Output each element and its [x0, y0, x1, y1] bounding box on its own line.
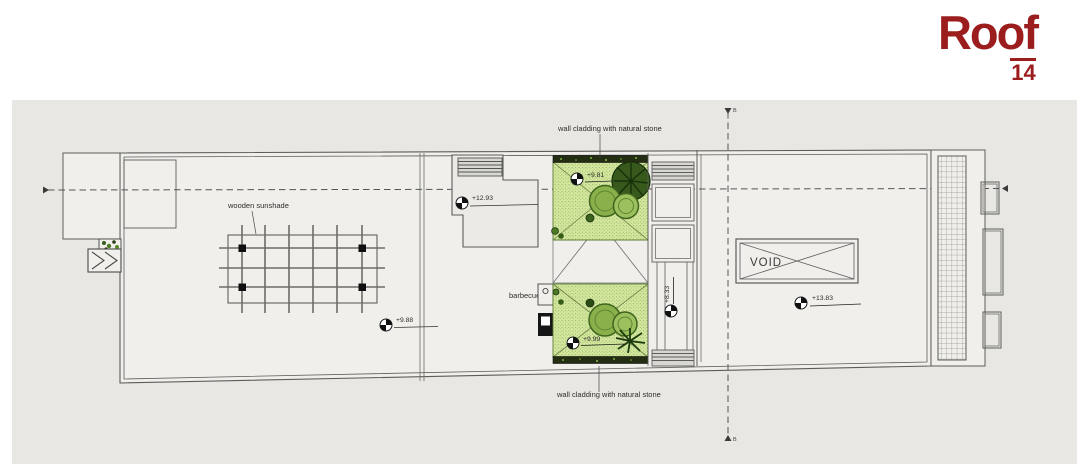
skylight-box-2 — [652, 225, 694, 262]
wall-cladding-label-top: wall cladding with natural stone — [557, 124, 662, 133]
stairs — [88, 249, 121, 272]
elevation-marker — [665, 305, 677, 317]
wooden-sunshade-label: wooden sunshade — [227, 201, 289, 210]
section-label-b-top: B — [733, 108, 737, 114]
elevation-value: +9.99 — [583, 336, 600, 343]
page: Roof 14 — [0, 0, 1087, 471]
section-marker-b-top — [725, 108, 732, 114]
elevation-value: +13.83 — [812, 295, 833, 302]
stone-cladding-strip-top — [553, 156, 648, 163]
barbecue-label: barbecue — [509, 291, 540, 300]
elevation-marker — [456, 197, 468, 209]
left-annex-block — [63, 153, 120, 239]
elevation-marker — [571, 173, 583, 185]
louver-vent-upper — [652, 162, 694, 180]
right-balcony-3 — [983, 312, 1001, 348]
elevation-value: +9.81 — [587, 172, 604, 179]
louver-vent-lower — [652, 350, 694, 366]
section-marker-a-left — [43, 187, 49, 194]
right-grid-strip — [931, 150, 1003, 366]
section-marker-b-bottom — [725, 435, 732, 441]
right-balcony-2 — [983, 229, 1003, 295]
section-marker-a-right — [1002, 185, 1008, 192]
elevation-marker — [795, 297, 807, 309]
elevation-value: +8.33 — [664, 286, 671, 303]
elevation-value: +9.88 — [396, 317, 413, 324]
roof-plan-drawing: +12.93 wooden sunshade +9.88 — [0, 0, 1087, 471]
wall-cladding-label-bottom: wall cladding with natural stone — [556, 390, 661, 399]
stone-cladding-strip-bottom — [553, 357, 648, 364]
elevation-value: +12.93 — [472, 195, 493, 202]
section-label-b-bottom: B — [733, 437, 737, 443]
elevation-marker — [380, 319, 392, 331]
elevation-marker — [567, 337, 579, 349]
skylight-box-1 — [652, 184, 694, 221]
void-label: VOID — [750, 257, 782, 269]
planter-bottom: +9.99 — [553, 284, 648, 364]
louver-vent-top — [458, 158, 502, 176]
